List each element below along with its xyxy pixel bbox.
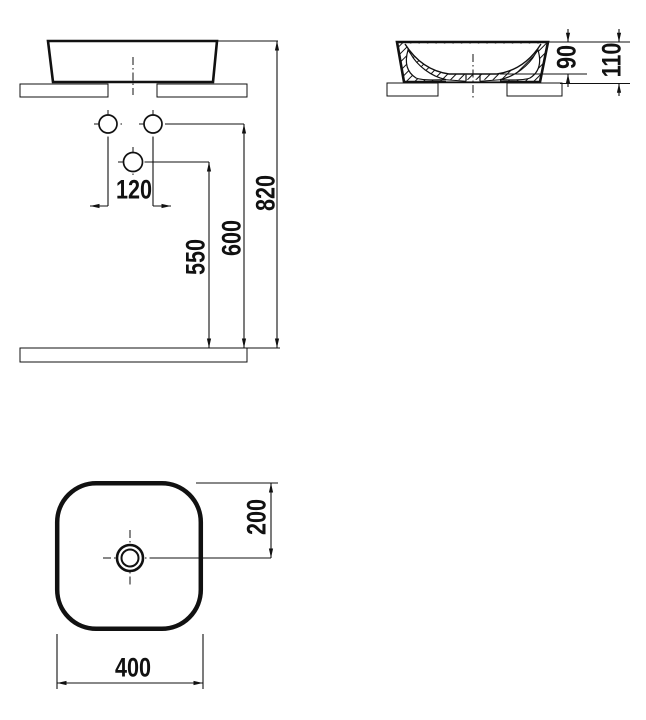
side-section-view: 90 110 <box>387 29 630 100</box>
dimension-400: 400 <box>57 634 203 689</box>
dimension-120: 120 <box>90 137 171 208</box>
dimension-600: 600 <box>165 124 247 348</box>
front-view: 120 550 600 820 <box>20 41 281 362</box>
dim-label-110: 110 <box>597 43 627 78</box>
wall-hole-lower <box>118 147 148 177</box>
dimension-550: 550 <box>145 162 211 348</box>
top-view: 200 400 <box>57 483 278 689</box>
wall-hole-left <box>94 110 122 137</box>
dimension-200: 200 <box>242 483 273 558</box>
technical-drawing-sheet: 120 550 600 820 <box>0 0 646 720</box>
floor <box>20 348 247 362</box>
countertop-right <box>157 84 247 97</box>
countertop-section-left <box>387 83 438 96</box>
dim-label-200: 200 <box>242 499 272 535</box>
dim-label-550: 550 <box>181 239 211 275</box>
dim-label-820: 820 <box>251 175 281 211</box>
dimension-90: 90 <box>552 29 582 87</box>
dimension-820: 820 <box>251 41 281 348</box>
dim-label-90: 90 <box>552 45 582 69</box>
wall-hole-right <box>139 110 167 137</box>
dim-label-600: 600 <box>217 220 247 256</box>
countertop-section-right <box>507 83 562 96</box>
dimension-110: 110 <box>597 29 627 96</box>
dim-label-120: 120 <box>116 175 152 205</box>
dim-label-400: 400 <box>115 653 151 683</box>
washbasin-dimension-drawing: 120 550 600 820 <box>0 0 646 720</box>
countertop-left <box>20 84 108 97</box>
